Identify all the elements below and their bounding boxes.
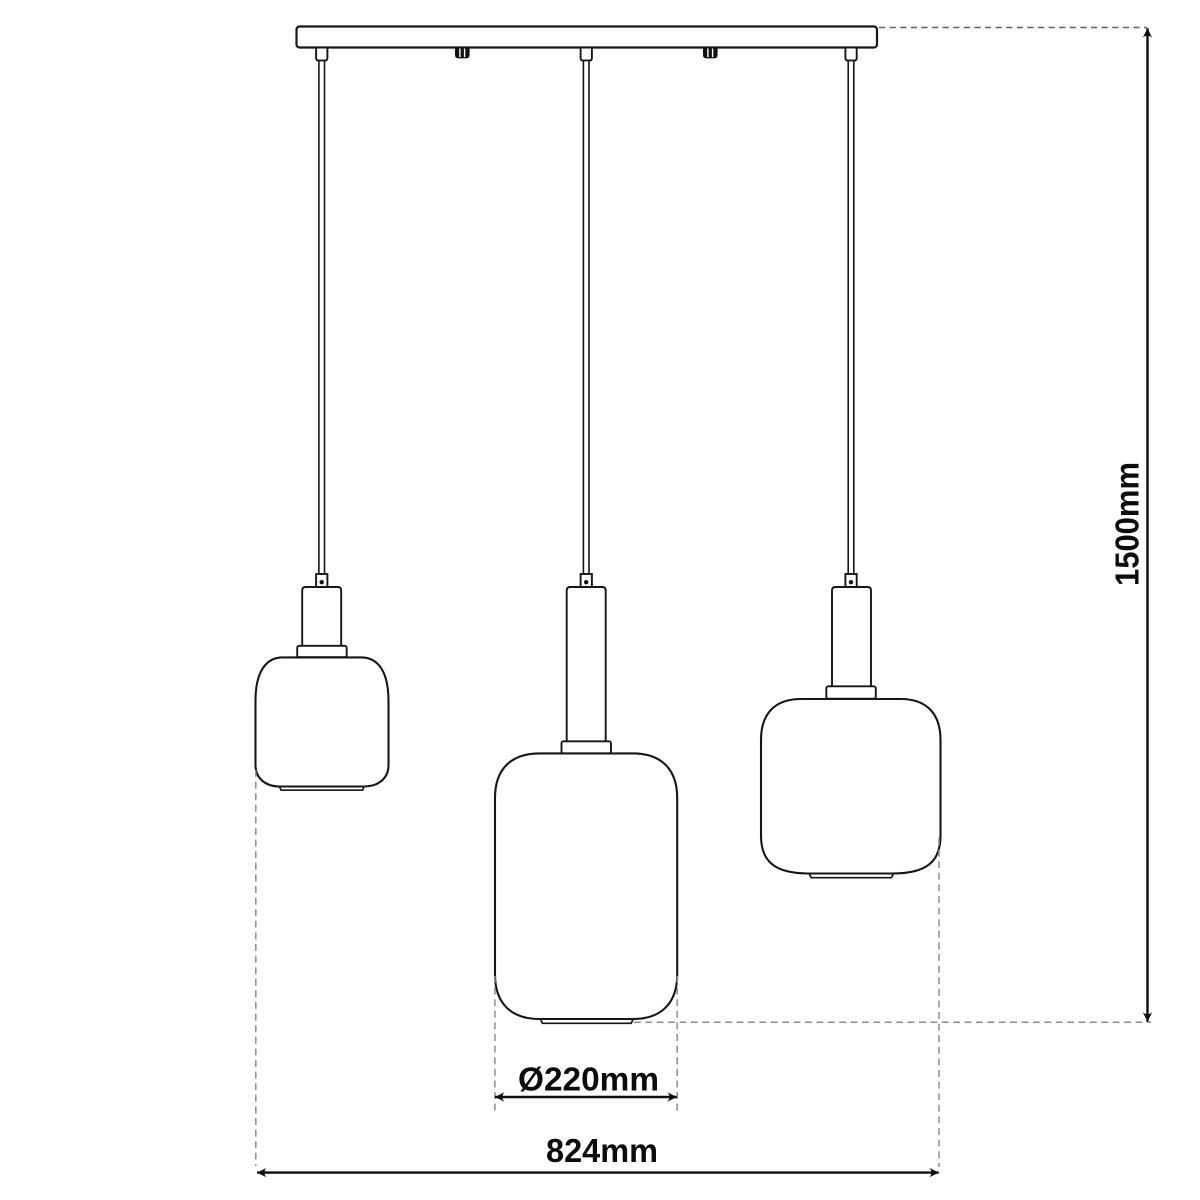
svg-text:1500mm: 1500mm <box>1109 462 1146 586</box>
svg-text:Ø220mm: Ø220mm <box>518 1061 659 1098</box>
svg-text:824mm: 824mm <box>546 1132 658 1169</box>
